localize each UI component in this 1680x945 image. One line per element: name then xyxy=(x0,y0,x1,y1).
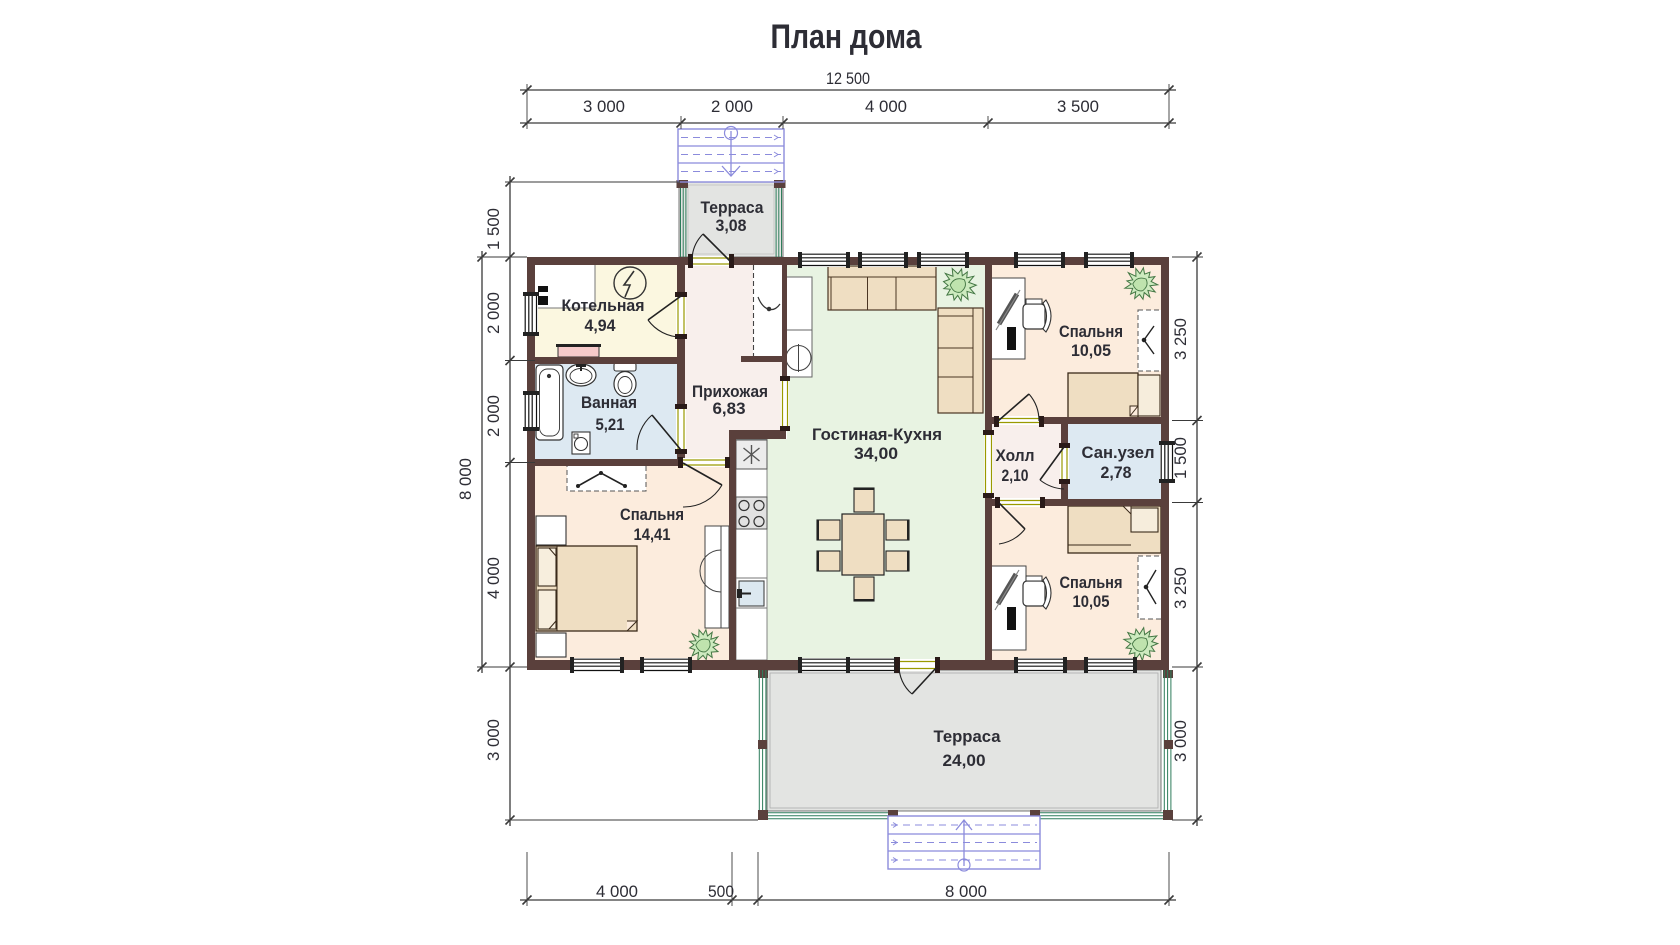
svg-text:14,41: 14,41 xyxy=(634,525,671,544)
svg-text:3 000: 3 000 xyxy=(1171,720,1190,762)
svg-text:34,00: 34,00 xyxy=(854,444,898,463)
svg-text:4,94: 4,94 xyxy=(585,316,617,335)
svg-text:3 250: 3 250 xyxy=(1171,318,1190,360)
svg-text:2,78: 2,78 xyxy=(1101,463,1132,482)
svg-text:3 000: 3 000 xyxy=(583,97,625,116)
svg-text:Спальня: Спальня xyxy=(1059,322,1123,341)
svg-text:Терраса: Терраса xyxy=(934,727,1002,746)
svg-text:Спальня: Спальня xyxy=(620,505,684,524)
svg-text:Холл: Холл xyxy=(996,446,1035,465)
svg-text:4 000: 4 000 xyxy=(865,97,907,116)
svg-text:Гостиная-Кухня: Гостиная-Кухня xyxy=(812,425,942,444)
svg-text:Ванная: Ванная xyxy=(581,393,637,412)
svg-text:6,83: 6,83 xyxy=(713,399,746,418)
svg-text:2 000: 2 000 xyxy=(484,395,503,437)
svg-text:24,00: 24,00 xyxy=(943,751,986,770)
svg-text:3,08: 3,08 xyxy=(716,216,747,235)
svg-text:2,10: 2,10 xyxy=(1002,466,1029,485)
svg-text:3 250: 3 250 xyxy=(1171,567,1190,609)
svg-text:12 500: 12 500 xyxy=(826,69,870,88)
svg-text:3 500: 3 500 xyxy=(1057,97,1099,116)
svg-text:1 500: 1 500 xyxy=(1171,437,1190,479)
svg-text:5,21: 5,21 xyxy=(596,415,625,434)
svg-text:Спальня: Спальня xyxy=(1060,573,1123,592)
svg-text:Терраса: Терраса xyxy=(701,198,764,217)
svg-text:4 000: 4 000 xyxy=(484,557,503,599)
svg-text:План дома: План дома xyxy=(771,18,923,56)
svg-text:10,05: 10,05 xyxy=(1071,341,1111,360)
svg-text:8 000: 8 000 xyxy=(945,882,987,901)
svg-text:Котельная: Котельная xyxy=(562,296,645,315)
svg-text:4 000: 4 000 xyxy=(596,882,638,901)
svg-text:2 000: 2 000 xyxy=(711,97,753,116)
svg-text:1 500: 1 500 xyxy=(484,208,503,250)
svg-text:3 000: 3 000 xyxy=(484,719,503,761)
svg-text:10,05: 10,05 xyxy=(1073,592,1110,611)
svg-text:500: 500 xyxy=(708,882,734,901)
svg-text:Сан.узел: Сан.узел xyxy=(1082,443,1155,462)
svg-text:8 000: 8 000 xyxy=(456,458,475,500)
svg-text:2 000: 2 000 xyxy=(484,292,503,334)
